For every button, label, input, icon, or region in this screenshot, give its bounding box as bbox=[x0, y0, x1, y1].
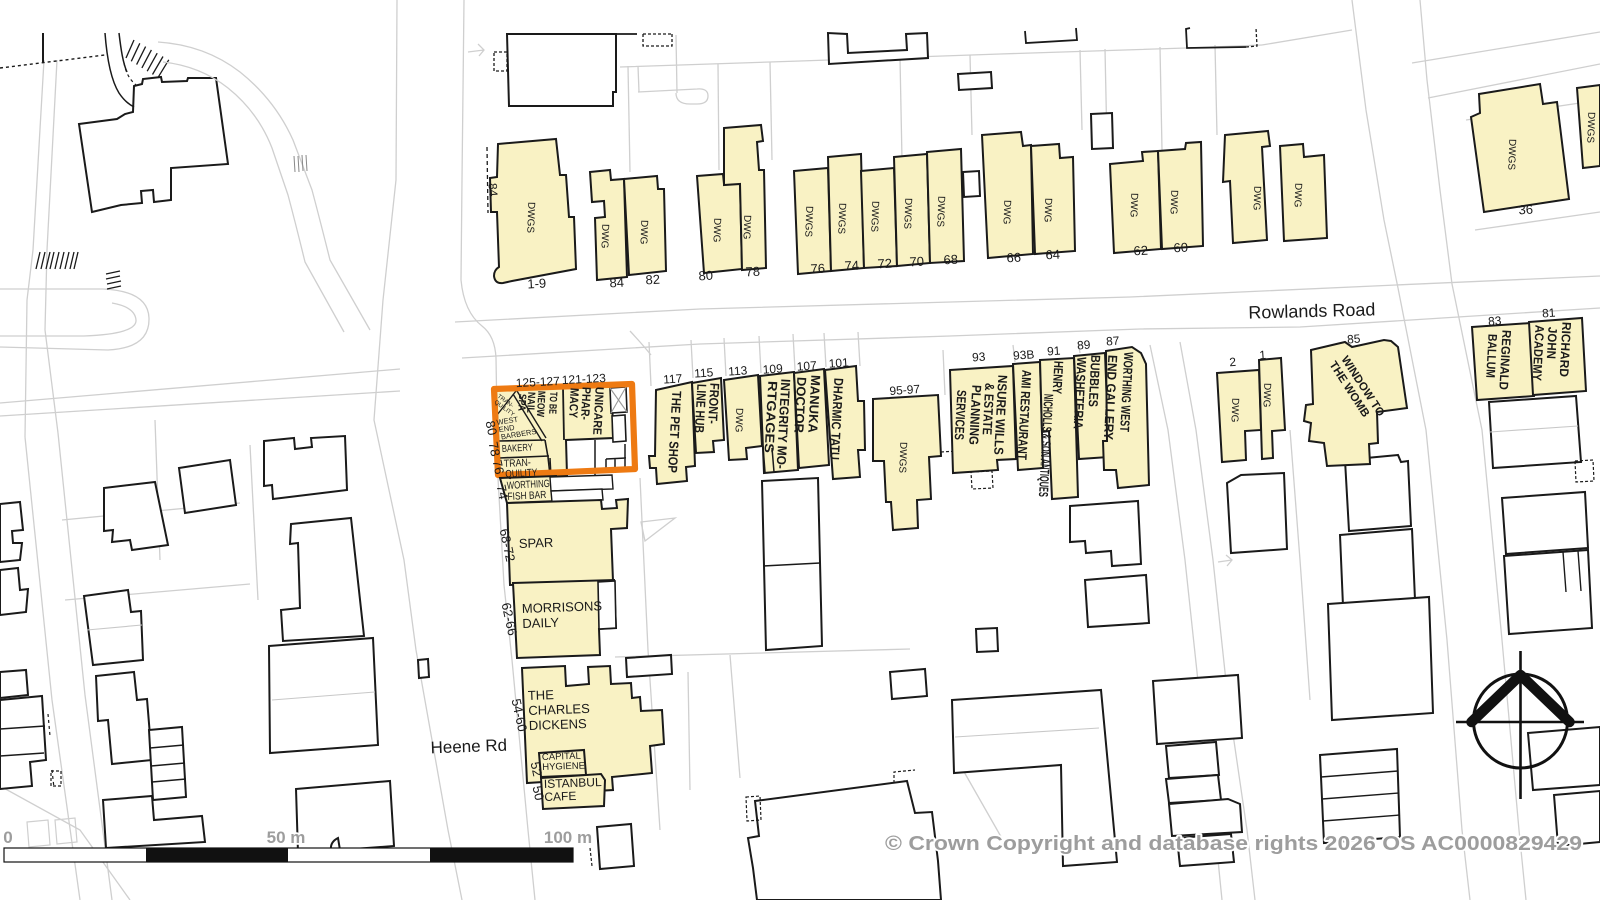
svg-text:70: 70 bbox=[909, 254, 924, 270]
svg-text:JOHN: JOHN bbox=[1544, 327, 1560, 360]
svg-text:DWG: DWG bbox=[599, 224, 611, 249]
svg-text:DWGS: DWGS bbox=[868, 201, 880, 233]
svg-text:84: 84 bbox=[486, 183, 501, 198]
svg-text:DWG: DWG bbox=[741, 215, 753, 240]
svg-text:68: 68 bbox=[943, 252, 958, 268]
svg-text:66: 66 bbox=[1006, 250, 1021, 266]
svg-text:DWG: DWG bbox=[1001, 200, 1013, 225]
svg-text:DWG: DWG bbox=[1292, 183, 1304, 208]
svg-text:UNICARE: UNICARE bbox=[590, 387, 606, 436]
svg-text:DWG: DWG bbox=[1042, 198, 1054, 223]
svg-text:91: 91 bbox=[1047, 344, 1062, 359]
svg-text:121-123: 121-123 bbox=[561, 371, 606, 387]
svg-text:83: 83 bbox=[1488, 314, 1503, 329]
svg-text:64: 64 bbox=[1045, 247, 1060, 263]
svg-text:BAKERY: BAKERY bbox=[502, 442, 534, 455]
svg-text:62: 62 bbox=[1133, 243, 1148, 259]
svg-text:125-127: 125-127 bbox=[515, 374, 560, 390]
svg-text:DWGS: DWGS bbox=[1505, 139, 1517, 171]
svg-text:95-97: 95-97 bbox=[889, 382, 921, 398]
svg-text:84: 84 bbox=[609, 275, 624, 291]
svg-text:DWGS: DWGS bbox=[901, 198, 913, 230]
svg-text:DWG: DWG bbox=[1251, 186, 1263, 211]
svg-text:76: 76 bbox=[810, 261, 825, 277]
svg-text:78: 78 bbox=[486, 440, 504, 457]
svg-text:HENRY: HENRY bbox=[1050, 361, 1067, 395]
svg-text:DWG: DWG bbox=[1261, 383, 1273, 408]
svg-text:MEOW: MEOW bbox=[534, 391, 547, 418]
svg-text:85: 85 bbox=[1347, 332, 1362, 347]
svg-text:SPAR: SPAR bbox=[519, 535, 554, 551]
svg-text:93B: 93B bbox=[1013, 347, 1035, 362]
svg-text:MANUKA: MANUKA bbox=[805, 375, 823, 434]
svg-text:ACADEMY: ACADEMY bbox=[1530, 325, 1547, 382]
svg-text:© Crown Copyright and database: © Crown Copyright and database rights 20… bbox=[885, 832, 1582, 855]
svg-text:DWGS: DWGS bbox=[835, 203, 847, 235]
svg-text:50 m: 50 m bbox=[267, 828, 306, 847]
svg-text:82: 82 bbox=[645, 272, 660, 288]
svg-text:72: 72 bbox=[877, 256, 892, 272]
svg-text:FRONT-: FRONT- bbox=[705, 383, 722, 425]
svg-text:93: 93 bbox=[972, 350, 987, 365]
svg-text:SERVICES: SERVICES bbox=[952, 390, 970, 441]
svg-text:TO BE: TO BE bbox=[546, 392, 559, 415]
svg-text:DWG: DWG bbox=[711, 218, 723, 243]
svg-text:1-9: 1-9 bbox=[527, 276, 547, 292]
svg-text:DWGS: DWGS bbox=[524, 202, 536, 234]
svg-text:BUBBLES: BUBBLES bbox=[1086, 355, 1104, 408]
svg-text:1: 1 bbox=[1259, 348, 1267, 362]
svg-text:74: 74 bbox=[844, 258, 859, 274]
svg-text:DWG: DWG bbox=[638, 220, 650, 245]
svg-text:109: 109 bbox=[762, 361, 783, 376]
svg-text:87: 87 bbox=[1106, 334, 1121, 349]
svg-text:DWG: DWG bbox=[1128, 193, 1140, 218]
svg-text:DWGS: DWGS bbox=[896, 442, 908, 474]
svg-text:BALLUM: BALLUM bbox=[1483, 334, 1499, 379]
svg-text:81: 81 bbox=[1542, 306, 1557, 321]
svg-text:DWGS: DWGS bbox=[802, 206, 814, 238]
svg-text:115: 115 bbox=[694, 365, 714, 380]
svg-text:89: 89 bbox=[1077, 338, 1092, 353]
svg-text:107: 107 bbox=[796, 358, 817, 373]
svg-text:DWG: DWG bbox=[1168, 190, 1180, 215]
svg-text:WORTHINGFISH BAR: WORTHINGFISH BAR bbox=[507, 478, 551, 503]
svg-text:60: 60 bbox=[1173, 240, 1188, 256]
svg-text:CAPITALHYGIENE: CAPITALHYGIENE bbox=[542, 751, 585, 773]
svg-text:RICHARD: RICHARD bbox=[1557, 322, 1574, 378]
svg-text:2: 2 bbox=[1229, 355, 1237, 369]
svg-text:Heene Rd: Heene Rd bbox=[430, 736, 507, 758]
svg-text:36: 36 bbox=[1518, 202, 1533, 218]
svg-text:DWG: DWG bbox=[733, 408, 745, 433]
svg-text:113: 113 bbox=[728, 363, 748, 378]
svg-text:78: 78 bbox=[745, 264, 760, 280]
svg-text:101: 101 bbox=[828, 355, 849, 370]
svg-text:117: 117 bbox=[663, 371, 683, 386]
svg-text:DWG: DWG bbox=[1229, 398, 1241, 423]
svg-text:Rowlands Road: Rowlands Road bbox=[1248, 299, 1376, 322]
svg-text:DWGS: DWGS bbox=[1584, 112, 1596, 144]
svg-text:80: 80 bbox=[698, 268, 713, 284]
svg-text:100 m: 100 m bbox=[544, 828, 592, 847]
svg-text:DWGS: DWGS bbox=[934, 196, 946, 228]
svg-text:0: 0 bbox=[3, 828, 12, 847]
